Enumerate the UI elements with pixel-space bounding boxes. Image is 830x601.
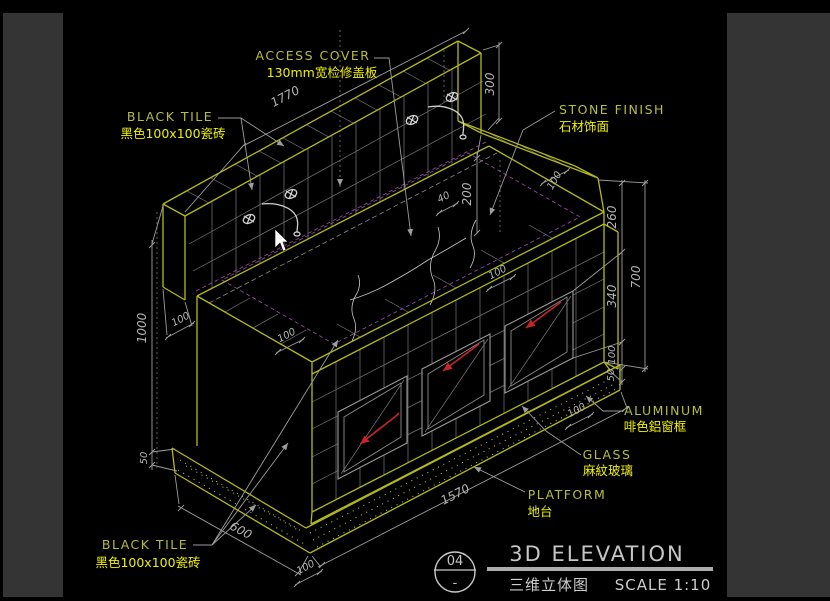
label-access-cover-zh: 130mm宽检修盖板 xyxy=(267,65,378,80)
dim-backsplash-height: 300 xyxy=(483,72,497,95)
dim-front-length: 1570 xyxy=(438,481,472,508)
dim-left-50: 50 xyxy=(139,452,150,465)
label-aluminum-en: ALUMINUM xyxy=(624,403,704,418)
dim-depth-600: 600 xyxy=(227,519,254,542)
dim-counter-border-right: 100 xyxy=(487,263,509,282)
cad-viewer-window: 1770 300 200 40 100 260 340 100 50 700 1… xyxy=(0,0,830,601)
viewer-panel-right xyxy=(727,13,830,597)
dim-platform-height-right: 100 xyxy=(566,401,588,420)
detail-sheet-ref: - xyxy=(453,576,458,591)
dim-right-340: 340 xyxy=(605,284,619,307)
label-black-tile-bottom-zh: 黑色100x100瓷砖 xyxy=(95,555,200,570)
label-stone-finish-zh: 石材饰面 xyxy=(559,119,609,134)
window-panel-1 xyxy=(338,376,407,479)
title-block: 04 - 3D ELEVATION 三维立体图 SCALE 1:10 xyxy=(434,542,713,594)
label-black-tile-top-zh: 黑色100x100瓷砖 xyxy=(120,126,225,141)
dim-step-height: 200 xyxy=(460,182,474,205)
drawing-scale: SCALE 1:10 xyxy=(615,576,712,594)
label-stone-finish-en: STONE FINISH xyxy=(559,102,665,117)
label-platform-en: PLATFORM xyxy=(528,487,607,502)
window-panel-3 xyxy=(505,291,573,393)
cad-drawing-canvas[interactable]: 1770 300 200 40 100 260 340 100 50 700 1… xyxy=(0,0,830,601)
mouse-cursor xyxy=(275,229,288,251)
label-access-cover-en: ACCESS COVER xyxy=(255,48,370,63)
drawing-title-zh: 三维立体图 xyxy=(509,576,589,594)
dim-right-100: 100 xyxy=(607,345,618,364)
dim-right-50: 50 xyxy=(606,369,617,382)
viewer-panel-left xyxy=(3,13,63,597)
stone-counter-texture xyxy=(209,153,580,344)
dim-top-length: 1770 xyxy=(268,83,302,110)
dim-return-width: 100 xyxy=(545,170,564,192)
dim-left-1000: 1000 xyxy=(135,312,149,343)
dim-platform-height-left: 100 xyxy=(295,558,317,577)
label-glass-zh: 麻紋玻璃 xyxy=(583,463,633,478)
title-underline-bar xyxy=(487,567,713,571)
dim-counter-border-left: 100 xyxy=(276,326,298,345)
label-black-tile-bottom-en: BLACK TILE xyxy=(102,537,188,552)
dim-slab-thickness: 40 xyxy=(436,190,452,206)
drawing-title-en: 3D ELEVATION xyxy=(509,542,684,566)
label-aluminum-zh: 啡色鋁窗框 xyxy=(624,419,687,434)
dim-right-260: 260 xyxy=(605,205,619,228)
label-platform-zh: 地台 xyxy=(527,504,552,519)
label-black-tile-top-en: BLACK TILE xyxy=(127,109,213,124)
dim-right-700: 700 xyxy=(629,265,643,288)
faucet-left xyxy=(242,188,300,236)
detail-number: 04 xyxy=(447,554,464,569)
faucet-right xyxy=(405,91,466,139)
wall-faucets xyxy=(242,91,466,236)
label-glass-en: GLASS xyxy=(583,447,632,462)
